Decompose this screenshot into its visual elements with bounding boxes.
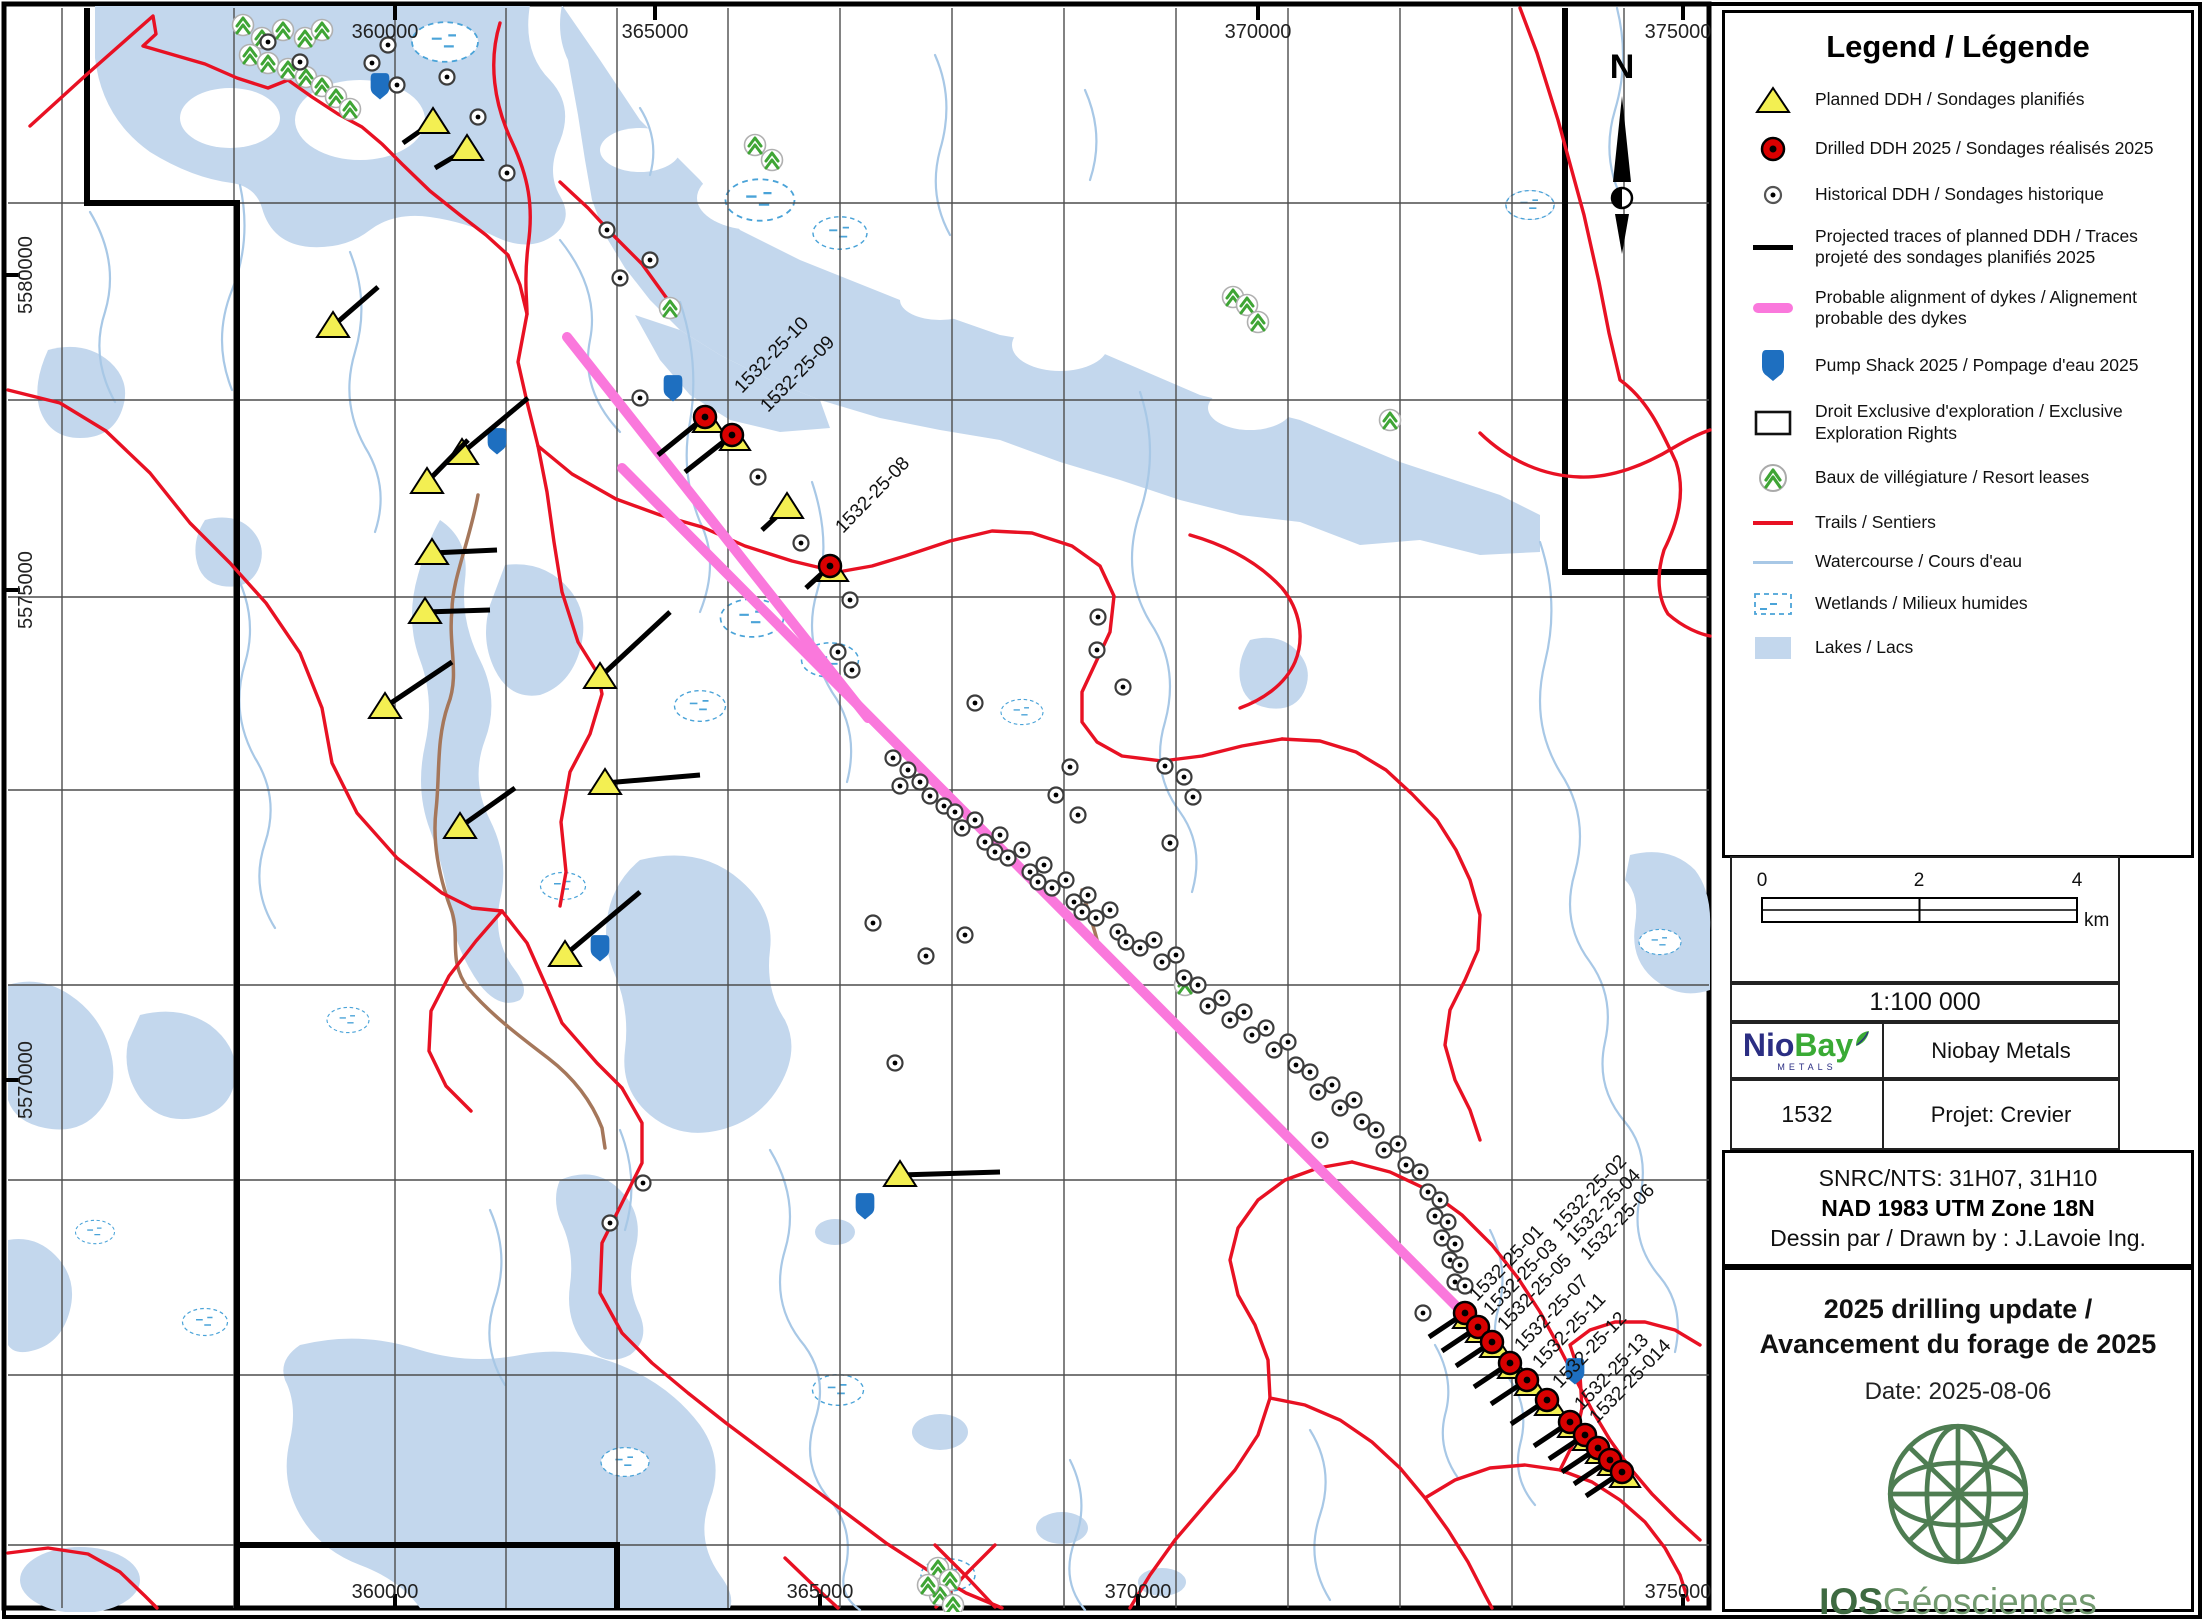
resort-lease-marker xyxy=(340,99,361,120)
historical-ddh-marker xyxy=(794,536,809,551)
historical-ddh-marker xyxy=(261,35,276,50)
historical-ddh-marker xyxy=(1289,1058,1304,1073)
historical-ddh-icon xyxy=(1747,182,1799,208)
north-label: N xyxy=(1610,48,1635,86)
historical-ddh-marker xyxy=(1177,971,1192,986)
resort-lease-marker xyxy=(312,20,333,41)
title-box: 2025 drilling update / Avancement du for… xyxy=(1722,1267,2194,1612)
logo-text-metals: METALS xyxy=(1777,1062,1836,1072)
legend-item-watercourse: Watercourse / Cours d'eau xyxy=(1747,542,2191,581)
historical-ddh-marker xyxy=(1158,759,1173,774)
resort-lease-marker xyxy=(660,298,681,319)
legend-item-label: Lakes / Lacs xyxy=(1815,637,1913,658)
historical-ddh-marker xyxy=(1049,788,1064,803)
historical-ddh-marker xyxy=(633,391,648,406)
scale-unit: km xyxy=(2084,910,2109,931)
historical-ddh-marker xyxy=(1453,1258,1468,1273)
project-code: 1532 xyxy=(1732,1081,1884,1148)
map-date: Date: 2025-08-06 xyxy=(1725,1378,2191,1406)
historical-ddh-marker xyxy=(636,1176,651,1191)
historical-ddh-marker xyxy=(1091,610,1106,625)
map-canvas: 1532-25-101532-25-091532-25-081532-25-01… xyxy=(0,0,1713,1612)
historical-ddh-marker xyxy=(1090,643,1105,658)
historical-ddh-marker xyxy=(1116,680,1131,695)
historical-ddh-marker xyxy=(1355,1115,1370,1130)
historical-ddh-marker xyxy=(1391,1137,1406,1152)
historical-ddh-marker xyxy=(1377,1143,1392,1158)
project-name: Projet: Crevier xyxy=(1884,1081,2118,1148)
ios-logo-text: Géosciences xyxy=(1883,1581,2097,1621)
historical-ddh-marker xyxy=(913,775,928,790)
historical-ddh-marker xyxy=(1416,1306,1431,1321)
historical-ddh-marker xyxy=(1071,808,1086,823)
historical-ddh-marker xyxy=(1191,978,1206,993)
historical-ddh-marker xyxy=(1075,905,1090,920)
historical-ddh-marker xyxy=(1201,999,1216,1014)
legend-box: Legend / Légende Planned DDH / Sondages … xyxy=(1722,10,2194,858)
scale-bar-box: 0 2 4 km xyxy=(1730,856,2120,983)
historical-ddh-marker xyxy=(1169,948,1184,963)
legend-item-label: Wetlands / Milieux humides xyxy=(1815,593,2028,614)
historical-ddh-marker xyxy=(1281,1035,1296,1050)
resort-lease-marker xyxy=(762,150,783,171)
historical-ddh-marker xyxy=(968,813,983,828)
legend-item-lakes: Lakes / Lacs xyxy=(1747,626,2191,670)
legend-item-dyke-alignment: Probable alignment of dykes / Alignement… xyxy=(1747,278,2191,339)
historical-ddh-marker xyxy=(1155,955,1170,970)
historical-ddh-marker xyxy=(1177,770,1192,785)
datum-box: SNRC/NTS: 31H07, 31H10 NAD 1983 UTM Zone… xyxy=(1722,1150,2194,1267)
resort-lease-marker xyxy=(258,53,279,74)
historical-ddh-marker xyxy=(919,949,934,964)
historical-ddh-marker xyxy=(1413,1165,1428,1180)
historical-ddh-marker xyxy=(1369,1123,1384,1138)
historical-ddh-marker xyxy=(948,805,963,820)
axis-label: 5580000 xyxy=(15,236,37,314)
historical-ddh-marker xyxy=(643,253,658,268)
historical-ddh-marker xyxy=(1223,1013,1238,1028)
historical-ddh-marker xyxy=(1313,1133,1328,1148)
historical-ddh-marker xyxy=(390,78,405,93)
historical-ddh-marker xyxy=(1311,1085,1326,1100)
ios-globe-icon xyxy=(1725,1414,2191,1579)
historical-ddh-marker xyxy=(968,696,983,711)
scale-tick-4: 4 xyxy=(2072,870,2083,891)
legend-item-label: Probable alignment of dykes / Alignement… xyxy=(1815,287,2160,330)
historical-ddh-marker xyxy=(901,763,916,778)
map-title-line1: 2025 drilling update / xyxy=(1725,1292,2191,1327)
historical-ddh-marker xyxy=(1303,1065,1318,1080)
axis-label: 370000 xyxy=(1225,21,1292,43)
historical-ddh-marker xyxy=(1433,1193,1448,1208)
legend-item-resort-leases: Baux de villégiature / Resort leases xyxy=(1747,453,2191,503)
exploration-rights-icon xyxy=(1747,409,1799,437)
historical-ddh-marker xyxy=(993,828,1008,843)
logo-text-bay: Bay xyxy=(1794,1029,1853,1061)
historical-ddh-marker xyxy=(1081,888,1096,903)
scale-ratio-box: 1:100 000 xyxy=(1730,983,2120,1022)
legend-item-label: Drilled DDH 2025 / Sondages réalisés 202… xyxy=(1815,138,2154,159)
axis-label: 370000 xyxy=(1105,1581,1172,1603)
historical-ddh-marker xyxy=(1119,935,1134,950)
drawn-by-text: Dessin par / Drawn by : J.Lavoie Ing. xyxy=(1770,1225,2146,1252)
company-name: Niobay Metals xyxy=(1884,1024,2118,1077)
historical-ddh-marker xyxy=(1237,1005,1252,1020)
historical-ddh-marker xyxy=(1325,1078,1340,1093)
wetland-icon xyxy=(1747,591,1799,617)
scale-ratio: 1:100 000 xyxy=(1869,988,1980,1017)
resort-lease-marker xyxy=(233,15,254,36)
planned-ddh-icon xyxy=(1747,84,1799,116)
axis-label: 360000 xyxy=(352,21,419,43)
axis-label: 375000 xyxy=(1645,21,1712,43)
historical-ddh-marker xyxy=(471,110,486,125)
lake-icon xyxy=(1747,635,1799,661)
logo-text-nio: Nio xyxy=(1743,1029,1795,1061)
historical-ddh-marker xyxy=(1186,790,1201,805)
ios-logo-text-bold: IOS xyxy=(1819,1581,1883,1621)
legend-item-label: Pump Shack 2025 / Pompage d'eau 2025 xyxy=(1815,355,2138,376)
resort-lease-marker xyxy=(943,1595,964,1613)
historical-ddh-marker xyxy=(1133,941,1148,956)
historical-ddh-marker xyxy=(843,593,858,608)
historical-ddh-marker xyxy=(1063,760,1078,775)
legend-title: Legend / Légende xyxy=(1725,29,2191,65)
historical-ddh-marker xyxy=(1399,1158,1414,1173)
axis-label: 365000 xyxy=(622,21,689,43)
historical-ddh-marker xyxy=(886,751,901,766)
historical-ddh-marker xyxy=(1045,881,1060,896)
historical-ddh-marker xyxy=(1267,1043,1282,1058)
project-row: 1532 Projet: Crevier xyxy=(1730,1079,2120,1150)
pump-shack-icon xyxy=(1747,347,1799,383)
legend-item-label: Droit Exclusive d'exploration / Exclusiv… xyxy=(1815,401,2160,444)
axis-label: 375000 xyxy=(1645,1581,1712,1603)
historical-ddh-marker xyxy=(1015,843,1030,858)
historical-ddh-marker xyxy=(293,55,308,70)
legend-item-label: Planned DDH / Sondages planifiés xyxy=(1815,89,2084,110)
historical-ddh-marker xyxy=(1001,851,1016,866)
legend-item-projected-traces: Projected traces of planned DDH / Traces… xyxy=(1747,217,2191,278)
historical-ddh-marker xyxy=(1347,1093,1362,1108)
historical-ddh-marker xyxy=(440,70,455,85)
historical-ddh-marker xyxy=(1441,1215,1456,1230)
legend-item-label: Historical DDH / Sondages historique xyxy=(1815,184,2104,205)
historical-ddh-marker xyxy=(958,928,973,943)
axis-label: 5570000 xyxy=(15,1041,37,1119)
resort-lease-icon xyxy=(1747,462,1799,494)
historical-ddh-marker xyxy=(500,166,515,181)
historical-ddh-marker xyxy=(831,645,846,660)
datum-text: NAD 1983 UTM Zone 18N xyxy=(1821,1195,2095,1222)
historical-ddh-marker xyxy=(1089,911,1104,926)
niobay-logo: NioBay METALS xyxy=(1732,1024,1884,1077)
axis-label: 360000 xyxy=(352,1581,419,1603)
historical-ddh-marker xyxy=(1215,991,1230,1006)
resort-lease-marker xyxy=(1248,312,1269,333)
historical-ddh-marker xyxy=(1103,903,1118,918)
projected-trace-icon xyxy=(1747,240,1799,254)
drilled-ddh-icon xyxy=(1747,134,1799,164)
side-panel: Legend / Légende Planned DDH / Sondages … xyxy=(1713,6,2198,1615)
watercourse-icon xyxy=(1747,558,1799,566)
dyke-alignment-icon xyxy=(1747,300,1799,316)
axis-label: 5575000 xyxy=(15,551,37,629)
resort-lease-marker xyxy=(1380,410,1401,431)
historical-ddh-marker xyxy=(751,470,766,485)
historical-ddh-marker xyxy=(1163,836,1178,851)
historical-ddh-marker xyxy=(845,663,860,678)
historical-ddh-marker xyxy=(923,789,938,804)
map-title-line2: Avancement du forage de 2025 xyxy=(1725,1327,2191,1362)
historical-ddh-marker xyxy=(1147,933,1162,948)
resort-lease-marker xyxy=(273,20,294,41)
axis-label: 365000 xyxy=(787,1581,854,1603)
map-sheet: 1532-25-101532-25-091532-25-081532-25-01… xyxy=(0,0,2204,1621)
resort-lease-marker xyxy=(745,135,766,156)
historical-ddh-marker xyxy=(1037,858,1052,873)
scale-bar: 0 2 4 km xyxy=(1732,858,2118,981)
legend-item-exploration-rights: Droit Exclusive d'exploration / Exclusiv… xyxy=(1747,392,2191,453)
historical-ddh-marker xyxy=(613,271,628,286)
snrc-text: SNRC/NTS: 31H07, 31H10 xyxy=(1819,1165,2098,1192)
historical-ddh-marker xyxy=(1059,873,1074,888)
historical-ddh-marker xyxy=(1448,1237,1463,1252)
scale-tick-0: 0 xyxy=(1757,870,1768,891)
historical-ddh-marker xyxy=(866,916,881,931)
resort-lease-marker xyxy=(918,1575,939,1596)
historical-ddh-marker xyxy=(888,1056,903,1071)
legend-item-label: Trails / Sentiers xyxy=(1815,512,1936,533)
legend-item-wetlands: Wetlands / Milieux humides xyxy=(1747,582,2191,626)
historical-ddh-marker xyxy=(1031,875,1046,890)
company-row: NioBay METALS Niobay Metals xyxy=(1730,1022,2120,1079)
leaf-icon xyxy=(1853,1029,1871,1049)
historical-ddh-marker xyxy=(1259,1021,1274,1036)
historical-ddh-marker xyxy=(893,779,908,794)
historical-ddh-marker xyxy=(1333,1101,1348,1116)
legend-item-label: Projected traces of planned DDH / Traces… xyxy=(1815,226,2160,269)
legend-item-label: Baux de villégiature / Resort leases xyxy=(1815,467,2089,488)
trail-icon xyxy=(1747,518,1799,528)
legend-item-historical-ddh: Historical DDH / Sondages historique xyxy=(1747,173,2191,217)
legend-item-drilled-ddh: Drilled DDH 2025 / Sondages réalisés 202… xyxy=(1747,125,2191,173)
legend-item-planned-ddh: Planned DDH / Sondages planifiés xyxy=(1747,75,2191,125)
legend-item-label: Watercourse / Cours d'eau xyxy=(1815,551,2022,572)
historical-ddh-marker xyxy=(365,56,380,71)
historical-ddh-marker xyxy=(1245,1028,1260,1043)
legend-item-trails: Trails / Sentiers xyxy=(1747,503,2191,542)
historical-ddh-marker xyxy=(603,1216,618,1231)
historical-ddh-marker xyxy=(600,223,615,238)
legend-item-pump-shack: Pump Shack 2025 / Pompage d'eau 2025 xyxy=(1747,338,2191,392)
scale-tick-2: 2 xyxy=(1914,870,1925,891)
